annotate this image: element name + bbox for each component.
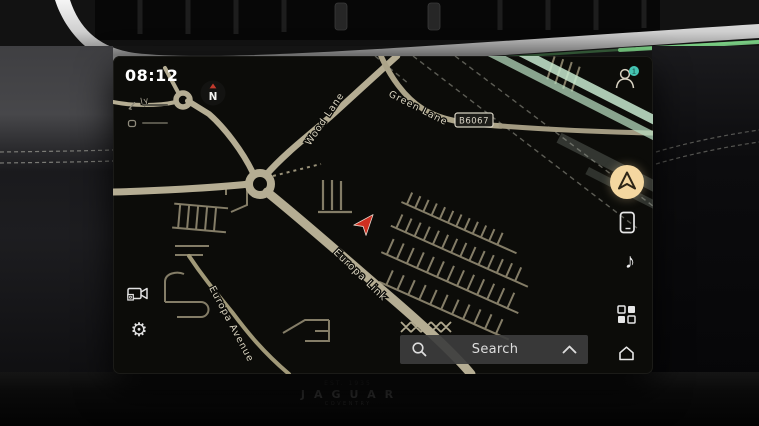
building-outlines	[165, 56, 580, 341]
search-icon	[411, 341, 428, 358]
navigation-arrow-icon	[610, 165, 644, 199]
apps-grid-icon	[617, 305, 636, 324]
status-widgets	[127, 100, 168, 128]
media-status-icon	[127, 118, 137, 128]
search-label: Search	[428, 342, 562, 357]
apps-button[interactable]	[617, 305, 636, 324]
media-status-widget[interactable]	[127, 118, 168, 128]
clock: 08:12	[125, 66, 178, 85]
phone-status-widget[interactable]	[127, 100, 168, 110]
profile-button[interactable]: 1	[613, 66, 639, 92]
home-icon	[617, 343, 636, 362]
media-status-bar	[142, 122, 168, 124]
chevron-up-icon[interactable]	[562, 345, 577, 354]
settings-button[interactable]: ⚙	[128, 319, 150, 341]
air-vent	[95, 0, 660, 40]
street-label-green-lane: Green Lane	[387, 89, 450, 128]
home-button[interactable]	[617, 343, 636, 362]
street-label-europa-link: Europa Link	[331, 247, 389, 303]
infotainment-screen: B6067 Wood Lane Green Lane Europa Link E…	[113, 56, 653, 374]
user-icon: 1	[613, 66, 639, 92]
phone-button[interactable]	[619, 211, 636, 234]
vent-tab	[428, 3, 440, 30]
music-note-icon: ♪	[625, 251, 636, 272]
street-label-europa-avenue: Europa Avenue	[206, 284, 255, 364]
compass-button[interactable]: N	[201, 81, 226, 106]
street-label-wood-lane: Wood Lane	[303, 91, 347, 148]
bottom-dash-panel	[0, 372, 759, 426]
search-bar[interactable]: Search	[400, 335, 588, 364]
compass-label: N	[209, 91, 218, 103]
video-camera-icon	[127, 285, 151, 303]
navigation-button-active[interactable]	[610, 165, 644, 199]
phone-status-bar	[142, 104, 168, 106]
phone-status-icon	[127, 100, 137, 110]
vent-tab	[335, 3, 347, 30]
vehicle-marker	[354, 209, 379, 235]
media-button[interactable]: ♪	[619, 249, 641, 273]
notification-count: 1	[632, 69, 636, 76]
camera-button[interactable]	[127, 285, 151, 303]
navigation-map[interactable]: B6067 Wood Lane Green Lane Europa Link E…	[113, 56, 653, 374]
right-dash-panel	[652, 46, 759, 426]
left-dash-panel	[0, 46, 113, 426]
road-number-label: B6067	[459, 117, 489, 127]
road-number-badge: B6067	[455, 113, 493, 127]
smartphone-icon	[619, 211, 636, 234]
gear-icon: ⚙	[130, 321, 147, 340]
roads	[113, 56, 653, 374]
